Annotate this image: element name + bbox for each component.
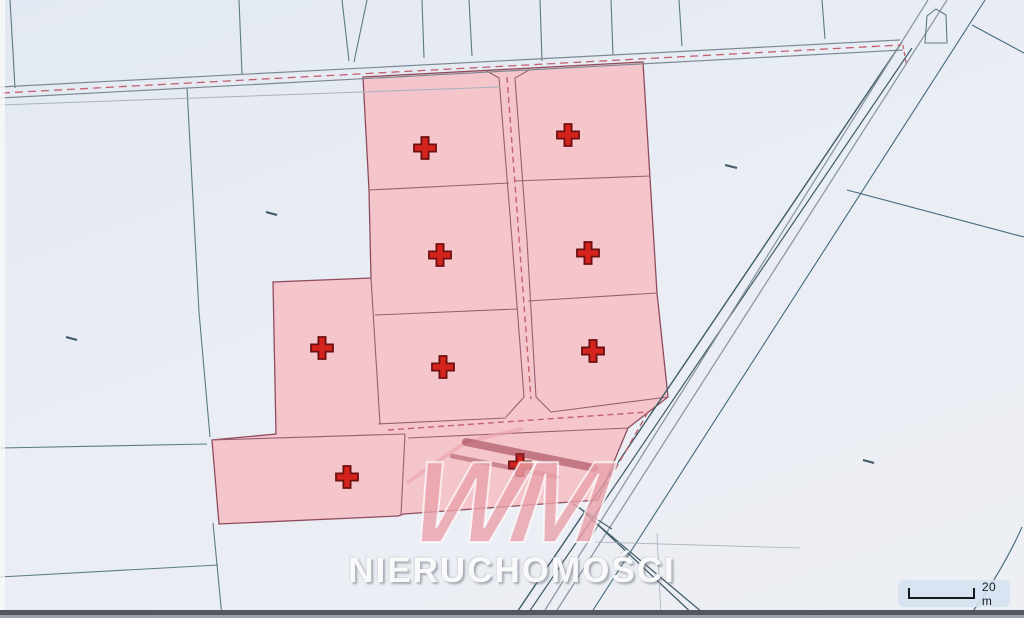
map-boundary-line xyxy=(972,25,1024,53)
map-boundary-line xyxy=(611,0,613,55)
map-boundary-line xyxy=(239,0,242,74)
watermark-name: NIERUCHOMOŚCI xyxy=(348,553,675,588)
map-boundary-line xyxy=(0,444,207,448)
map-boundary-line xyxy=(822,0,825,39)
map-boundary-line xyxy=(354,0,367,62)
survey-tick-mark xyxy=(266,212,277,215)
map-boundary-line xyxy=(342,0,349,61)
map-boundary-line xyxy=(847,190,1024,237)
map-boundary-line xyxy=(595,542,800,548)
map-boundary-line xyxy=(679,0,682,46)
watermark-logo: WM xyxy=(405,444,607,560)
map-boundary-line xyxy=(0,565,218,577)
scale-bracket-icon xyxy=(908,588,975,599)
scale-bar: 20 m xyxy=(898,580,1010,607)
map-boundary-line xyxy=(422,0,424,58)
survey-tick-mark xyxy=(863,460,874,463)
map-boundary-line xyxy=(540,0,542,61)
photo-edge-left xyxy=(0,0,5,618)
survey-tick-mark xyxy=(66,337,77,340)
scale-label: 20 m xyxy=(982,580,1010,608)
map-boundary-line xyxy=(10,0,15,88)
map-boundary-line xyxy=(469,0,472,56)
map-boundary-line xyxy=(213,523,222,617)
map-boundary-line xyxy=(187,88,210,437)
cadastral-map-photo: WM NIERUCHOMOŚCI 20 m xyxy=(0,0,1024,618)
survey-tick-mark xyxy=(725,165,737,168)
map-boundary-line xyxy=(925,9,947,43)
